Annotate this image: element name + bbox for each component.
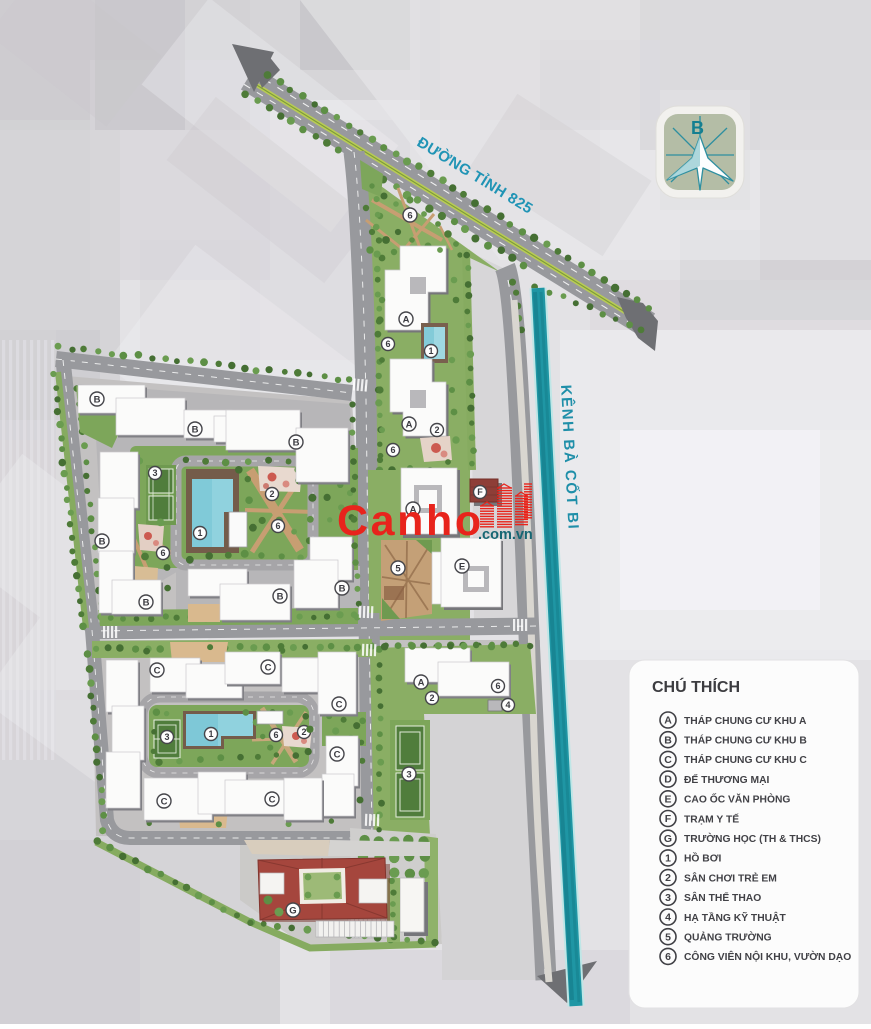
svg-text:THÁP CHUNG CƯ KHU B: THÁP CHUNG CƯ KHU B <box>684 734 807 747</box>
svg-text:2: 2 <box>434 425 439 435</box>
svg-text:A: A <box>406 419 413 430</box>
svg-text:6: 6 <box>495 681 500 691</box>
svg-text:Canho: Canho <box>337 497 484 545</box>
svg-text:CHÚ THÍCH: CHÚ THÍCH <box>652 677 740 696</box>
svg-text:B: B <box>99 536 106 547</box>
svg-text:C: C <box>336 699 343 710</box>
svg-text:2: 2 <box>665 872 671 884</box>
svg-text:C: C <box>334 749 341 760</box>
svg-text:G: G <box>289 905 296 916</box>
svg-text:B: B <box>664 734 672 746</box>
svg-text:SÂN THỂ THAO: SÂN THỂ THAO <box>684 891 761 904</box>
svg-text:6: 6 <box>385 339 390 349</box>
svg-text:6: 6 <box>273 730 278 740</box>
svg-text:2: 2 <box>269 489 274 499</box>
svg-text:CAO ỐC VĂN PHÒNG: CAO ỐC VĂN PHÒNG <box>684 792 790 806</box>
svg-text:HẠ TẦNG KỸ THUẬT: HẠ TẦNG KỸ THUẬT <box>684 911 787 924</box>
svg-text:TRẠM Y TẾ: TRẠM Y TẾ <box>684 812 739 825</box>
svg-text:4: 4 <box>505 700 510 710</box>
svg-text:D: D <box>664 774 672 786</box>
svg-text:B: B <box>94 394 101 405</box>
svg-text:6: 6 <box>390 445 395 455</box>
svg-text:3: 3 <box>665 892 671 904</box>
svg-text:B: B <box>293 437 300 448</box>
svg-text:HỒ BƠI: HỒ BƠI <box>684 852 722 865</box>
svg-text:1: 1 <box>665 853 671 865</box>
svg-text:THÁP CHUNG CƯ KHU C: THÁP CHUNG CƯ KHU C <box>684 753 807 766</box>
svg-text:3: 3 <box>164 732 169 742</box>
svg-text:ĐẾ THƯƠNG MẠI: ĐẾ THƯƠNG MẠI <box>684 773 770 786</box>
svg-text:C: C <box>265 662 272 673</box>
svg-text:6: 6 <box>407 210 412 221</box>
svg-text:C: C <box>269 794 276 805</box>
svg-text:3: 3 <box>152 468 157 478</box>
svg-text:6: 6 <box>665 951 671 963</box>
svg-text:B: B <box>339 583 346 594</box>
svg-text:B: B <box>691 118 704 138</box>
svg-text:6: 6 <box>275 521 280 531</box>
svg-text:A: A <box>664 715 672 727</box>
svg-text:QUẢNG TRƯỜNG: QUẢNG TRƯỜNG <box>684 931 772 944</box>
svg-text:A: A <box>418 677 425 688</box>
svg-text:5: 5 <box>395 563 401 574</box>
svg-text:CÔNG VIÊN NỘI KHU, VƯỜN DẠO: CÔNG VIÊN NỘI KHU, VƯỜN DẠO <box>684 950 851 963</box>
svg-text:5: 5 <box>665 931 671 943</box>
svg-text:B: B <box>143 597 150 608</box>
svg-text:.com.vn: .com.vn <box>478 527 533 543</box>
svg-text:G: G <box>664 833 672 845</box>
svg-text:A: A <box>403 314 410 325</box>
svg-text:2: 2 <box>301 727 306 737</box>
svg-text:B: B <box>277 591 284 602</box>
svg-text:1: 1 <box>197 528 202 538</box>
svg-text:E: E <box>664 793 671 805</box>
svg-text:1: 1 <box>428 346 433 356</box>
svg-text:TRƯỜNG HỌC (TH & THCS): TRƯỜNG HỌC (TH & THCS) <box>684 832 821 845</box>
svg-text:C: C <box>161 796 168 807</box>
svg-text:SÂN CHƠI TRẺ EM: SÂN CHƠI TRẺ EM <box>684 871 777 884</box>
svg-text:3: 3 <box>406 769 411 780</box>
svg-text:THÁP CHUNG CƯ KHU A: THÁP CHUNG CƯ KHU A <box>684 714 807 727</box>
svg-text:B: B <box>192 424 199 435</box>
svg-text:4: 4 <box>665 912 671 924</box>
svg-text:1: 1 <box>208 729 213 739</box>
svg-text:F: F <box>665 813 672 825</box>
svg-text:F: F <box>477 487 483 497</box>
svg-text:C: C <box>154 665 161 676</box>
svg-text:E: E <box>459 561 465 572</box>
svg-text:6: 6 <box>160 548 165 558</box>
svg-text:2: 2 <box>429 693 434 703</box>
svg-text:C: C <box>664 754 672 766</box>
